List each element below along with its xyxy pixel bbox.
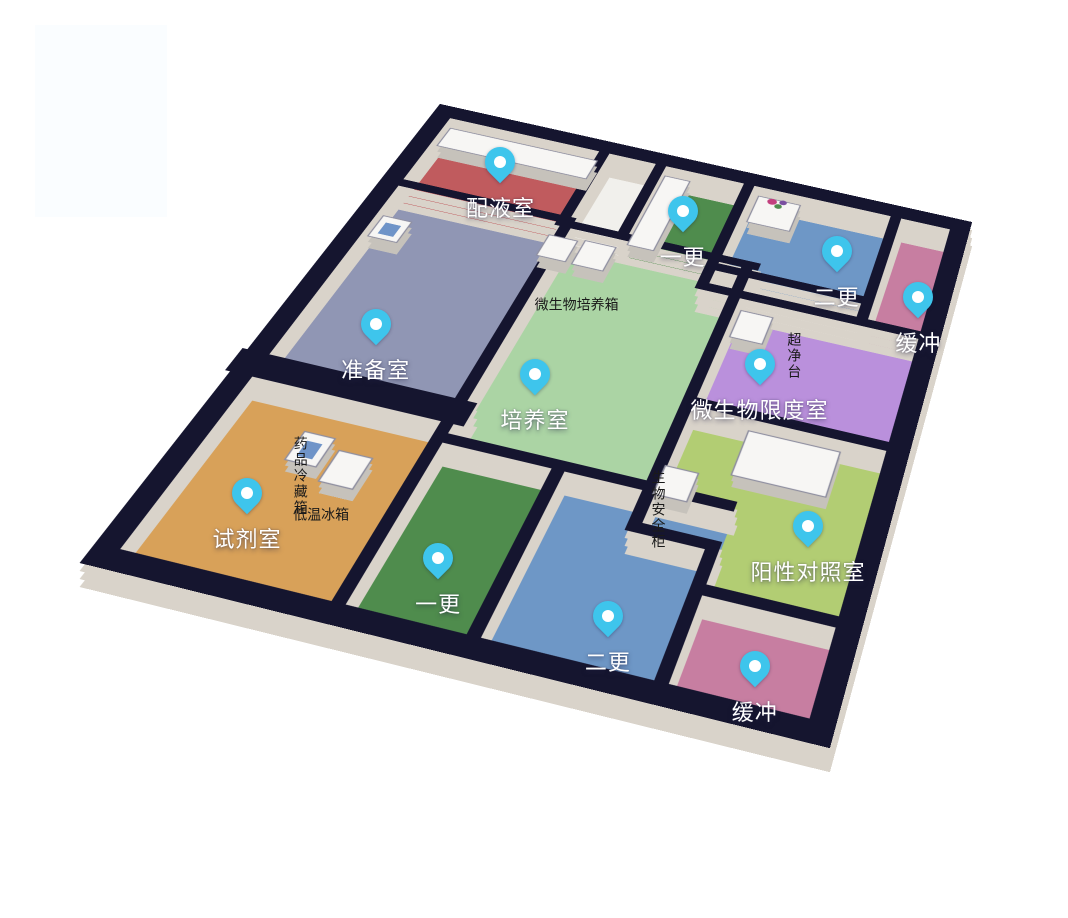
equipment-label-biosafety-cabinet: 生物安全柜 bbox=[649, 470, 664, 550]
equipment-label-medicine-fridge: 药品冷藏箱 bbox=[291, 436, 306, 516]
pin-hole-icon bbox=[677, 205, 689, 217]
pin-hole-icon bbox=[370, 318, 382, 330]
map-pin-weishengwu-xiandushi[interactable] bbox=[745, 349, 775, 379]
pin-hole-icon bbox=[432, 552, 444, 564]
room-label-peiyangshi: 培养室 bbox=[500, 403, 569, 435]
map-pin-ergeng-bottom[interactable] bbox=[593, 601, 623, 631]
map-pin-huanchong-top[interactable] bbox=[903, 282, 933, 312]
room-label-peiyeshi: 配液室 bbox=[466, 191, 535, 223]
map-pin-huanchong-bottom[interactable] bbox=[740, 651, 770, 681]
room-label-yigeng-bottom: 一更 bbox=[415, 587, 461, 619]
equipment-label-clean-bench: 超净台 bbox=[785, 332, 800, 380]
lab-floorplan-scene: 配液室一更二更缓冲准备室培养室微生物限度室阳性对照室试剂室一更二更缓冲微生物培养… bbox=[0, 0, 1068, 918]
pins-and-labels-overlay: 配液室一更二更缓冲准备室培养室微生物限度室阳性对照室试剂室一更二更缓冲微生物培养… bbox=[0, 0, 1068, 918]
room-label-ergeng-bottom: 二更 bbox=[585, 645, 631, 677]
pin-hole-icon bbox=[754, 358, 766, 370]
pin-hole-icon bbox=[749, 660, 761, 672]
room-label-shijishi: 试剂室 bbox=[212, 522, 281, 554]
map-pin-yigeng-bottom[interactable] bbox=[423, 543, 453, 573]
map-pin-peiyeshi[interactable] bbox=[485, 147, 515, 177]
map-pin-ergeng-top[interactable] bbox=[822, 236, 852, 266]
room-label-huanchong-bottom: 缓冲 bbox=[732, 695, 778, 727]
equipment-label-low-temp-freezer: 低温冰箱 bbox=[293, 509, 349, 524]
room-label-ergeng-top: 二更 bbox=[814, 280, 860, 312]
room-label-zhunbeishi: 准备室 bbox=[341, 353, 410, 385]
pin-hole-icon bbox=[802, 520, 814, 532]
pin-hole-icon bbox=[602, 610, 614, 622]
map-pin-shijishi[interactable] bbox=[232, 478, 262, 508]
map-pin-yigeng-top[interactable] bbox=[668, 196, 698, 226]
equipment-label-incubator-2: 微生物培养箱 bbox=[535, 300, 619, 315]
room-label-yangxing-duizhaoshi: 阳性对照室 bbox=[751, 555, 866, 587]
map-pin-zhunbeishi[interactable] bbox=[361, 309, 391, 339]
room-label-yigeng-top: 一更 bbox=[660, 240, 706, 272]
pin-hole-icon bbox=[831, 245, 843, 257]
pin-hole-icon bbox=[529, 368, 541, 380]
room-label-weishengwu-xiandushi: 微生物限度室 bbox=[691, 393, 829, 425]
room-label-huanchong-top: 缓冲 bbox=[895, 326, 941, 358]
map-pin-yangxing-duizhaoshi[interactable] bbox=[793, 511, 823, 541]
map-pin-peiyangshi[interactable] bbox=[520, 359, 550, 389]
